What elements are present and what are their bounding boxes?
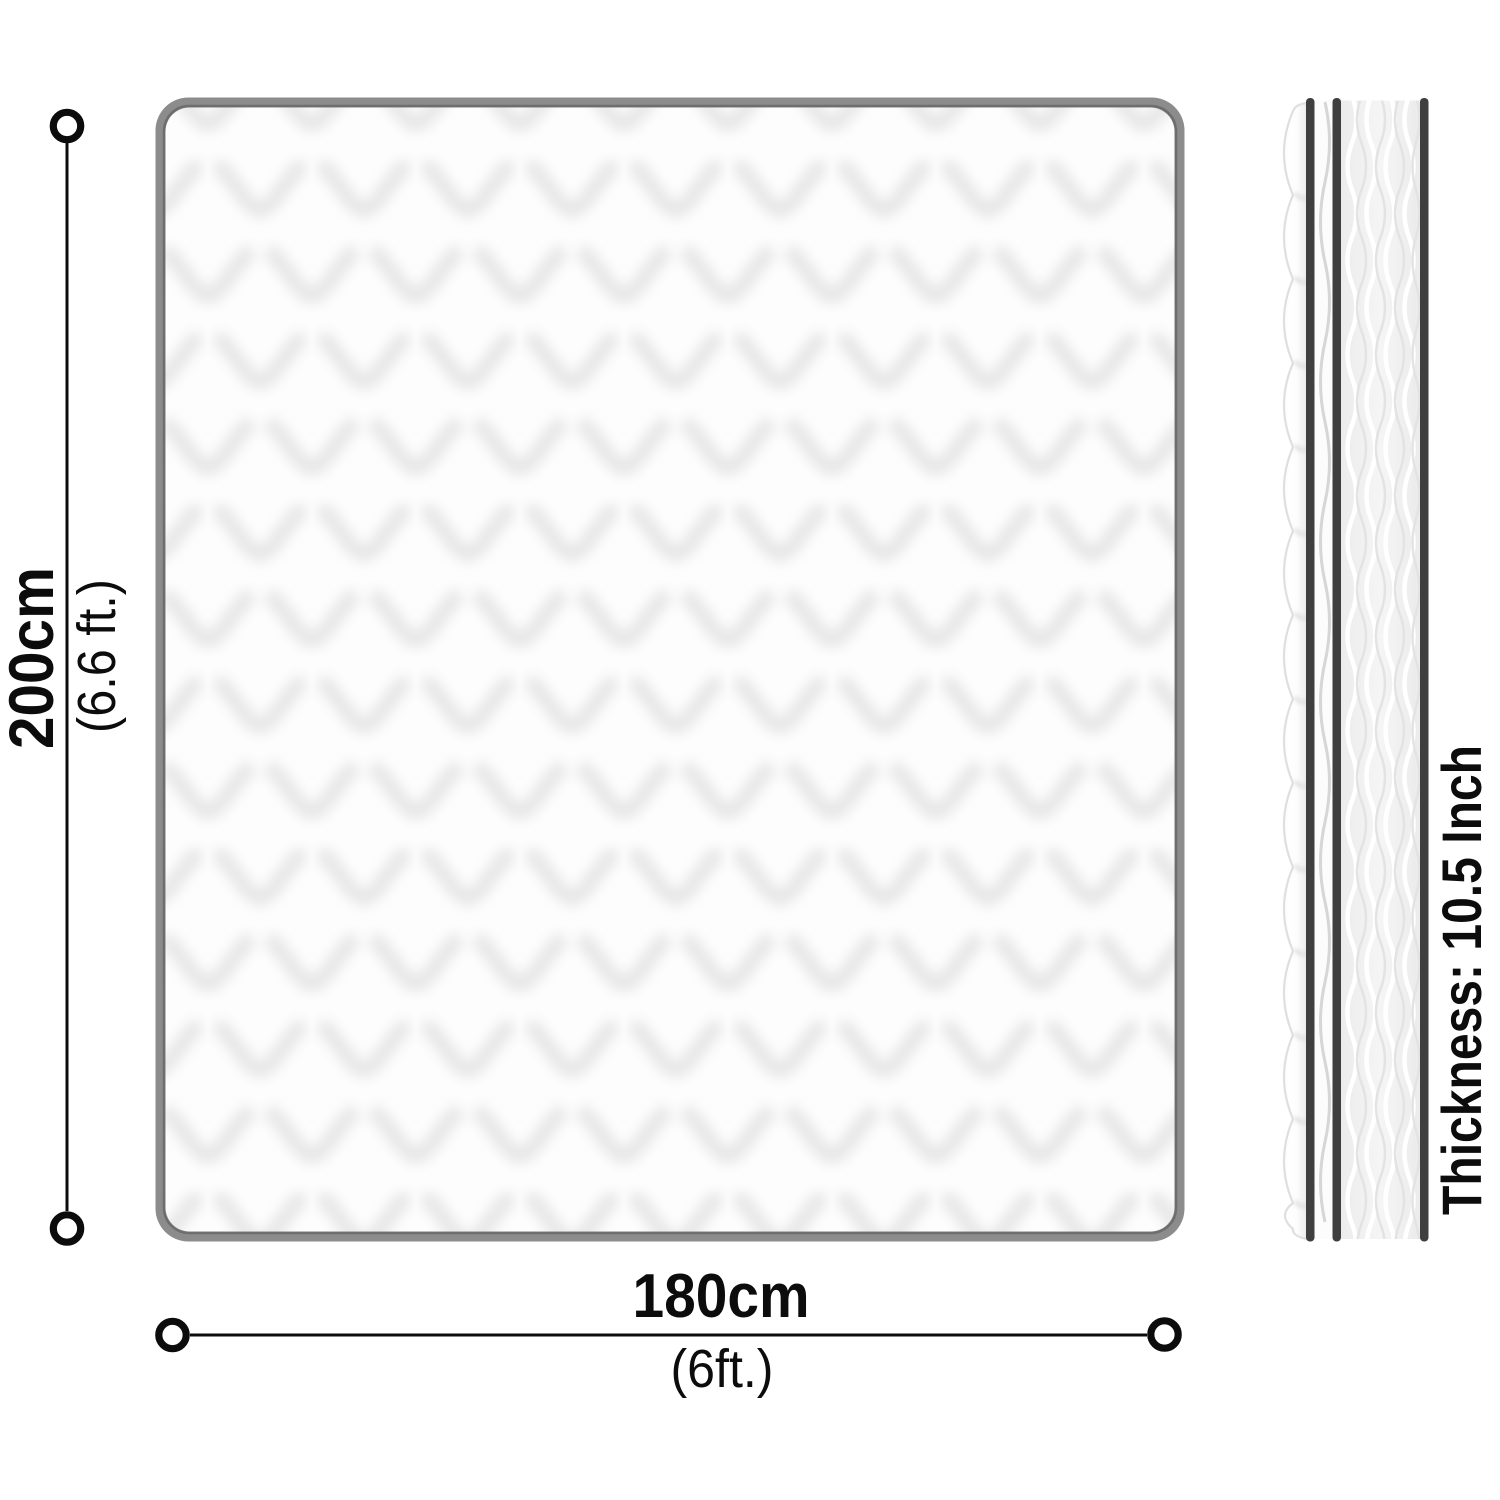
svg-text:(6ft.): (6ft.): [671, 1339, 774, 1399]
svg-text:200cm: 200cm: [0, 567, 67, 749]
svg-text:180cm: 180cm: [633, 1262, 810, 1331]
svg-text:Thickness: 10.5 Inch: Thickness: 10.5 Inch: [1430, 745, 1493, 1215]
svg-text:(6.6 ft.): (6.6 ft.): [67, 579, 127, 733]
